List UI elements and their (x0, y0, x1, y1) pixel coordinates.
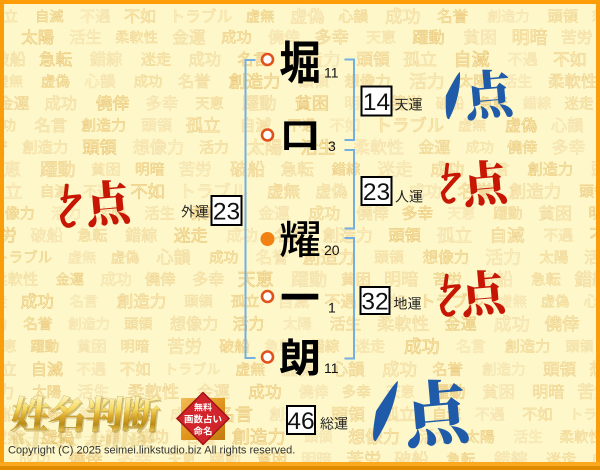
svg-text:11: 11 (324, 65, 339, 81)
svg-text:1: 1 (328, 300, 336, 316)
svg-text:23: 23 (363, 179, 390, 206)
svg-text:14: 14 (363, 89, 390, 116)
svg-text:11: 11 (324, 360, 339, 376)
svg-text:46: 46 (287, 408, 314, 435)
svg-text:32: 32 (361, 288, 388, 315)
svg-text:20: 20 (324, 242, 340, 258)
svg-text:23: 23 (213, 198, 240, 225)
svg-text:3: 3 (328, 138, 336, 154)
svg-text:Copyright (C) 2025 seimei.link: Copyright (C) 2025 seimei.linkstudio.biz… (8, 445, 295, 457)
